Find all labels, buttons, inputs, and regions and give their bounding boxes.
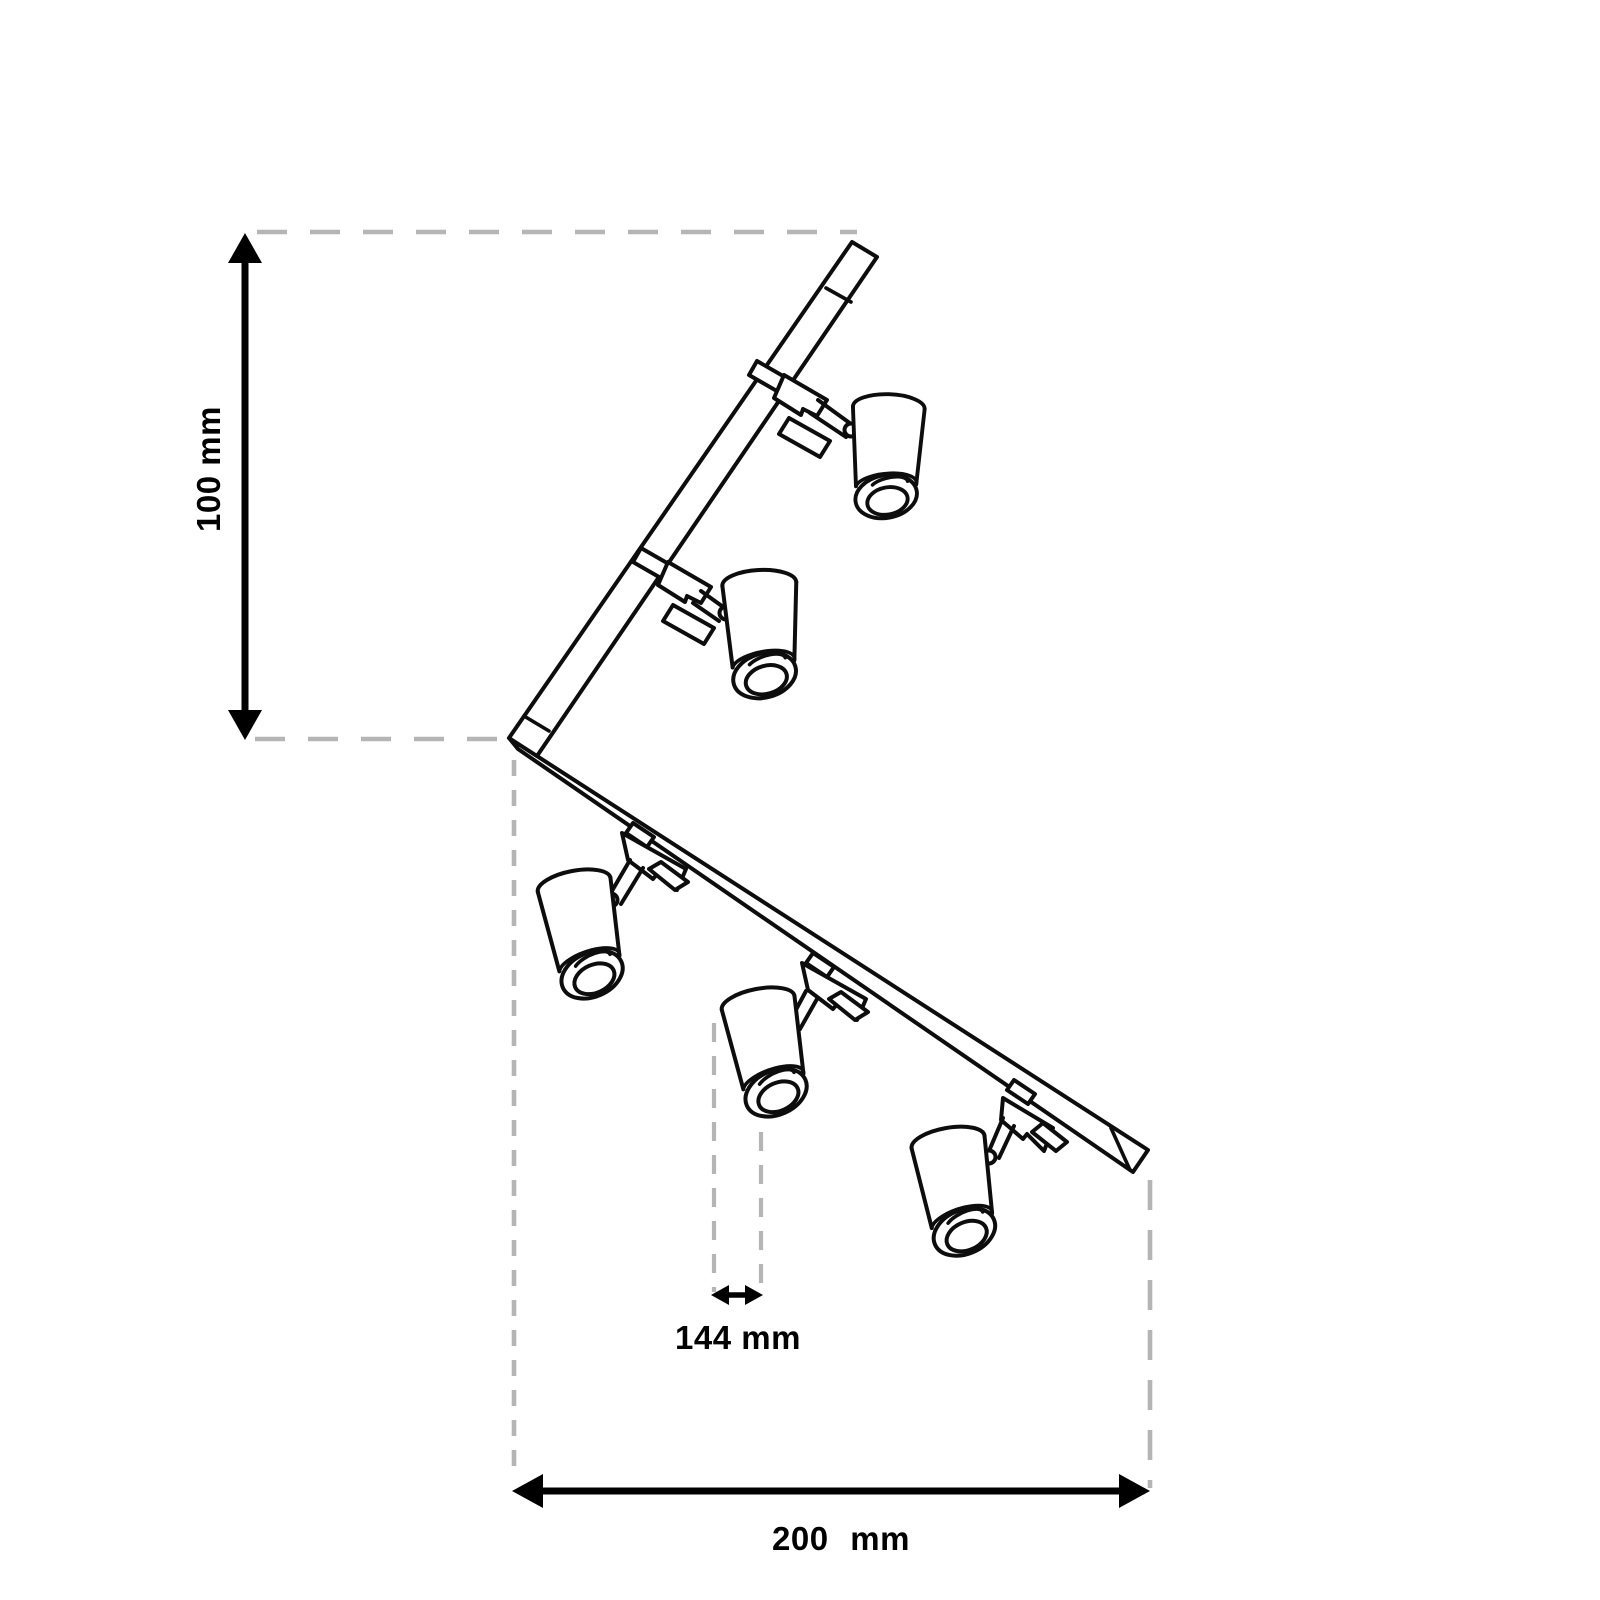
diagram-page: 100 mm 144 mm 200 mm: [0, 0, 1600, 1600]
upper-track-rail: [509, 242, 877, 756]
arrowhead-up-icon: [228, 233, 262, 263]
spotlight-1: [749, 361, 925, 526]
dimension-200mm: 200 mm: [512, 1474, 1150, 1557]
dimension-label-144mm: 144 mm: [675, 1319, 801, 1356]
spotlight-head: [535, 864, 633, 1010]
spotlight-head: [719, 982, 817, 1128]
adapter-block: [658, 562, 711, 603]
spotlight-head: [849, 393, 925, 526]
spotlight-2: [633, 548, 803, 706]
spotlight-4: [719, 953, 868, 1128]
dimension-100mm: 100 mm: [190, 233, 262, 740]
arrowhead-right-icon: [1119, 1474, 1150, 1508]
dimension-label-100mm: 100 mm: [190, 406, 227, 532]
dimension-label-200mm: 200 mm: [772, 1520, 910, 1557]
arrowhead-down-icon: [228, 710, 262, 740]
diagram-canvas: 100 mm 144 mm 200 mm: [0, 0, 1600, 1600]
adapter-block: [774, 375, 827, 416]
arrowhead-left-icon: [512, 1474, 543, 1508]
spotlight-head: [722, 568, 803, 706]
arrowhead-right-icon: [745, 1285, 763, 1305]
extension-lines: [255, 232, 1150, 1488]
dimension-144mm: 144 mm: [675, 1285, 801, 1356]
lock-lever: [779, 418, 830, 457]
